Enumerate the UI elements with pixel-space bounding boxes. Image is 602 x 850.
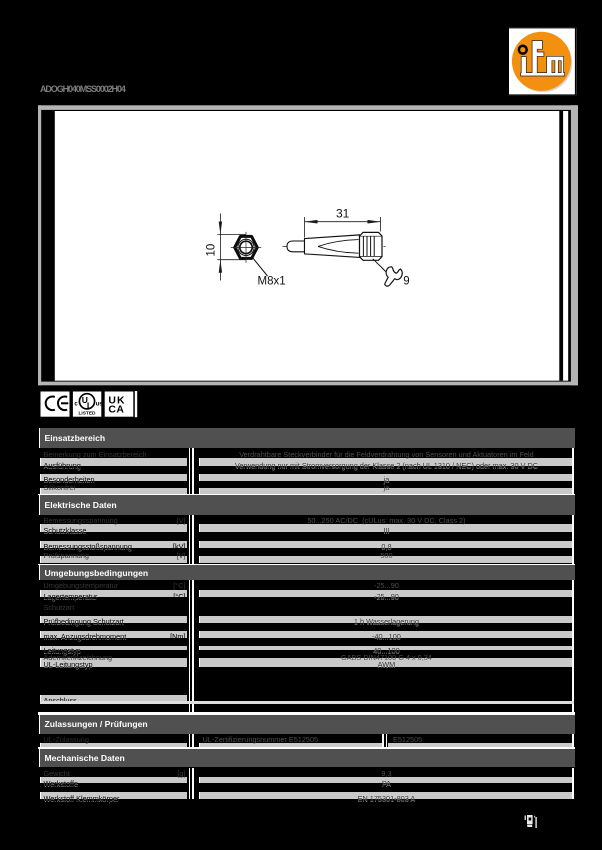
svg-text:M8x1: M8x1 bbox=[258, 276, 286, 288]
svg-text:31: 31 bbox=[336, 207, 350, 221]
svg-text:CA: CA bbox=[108, 405, 124, 416]
svg-text:10: 10 bbox=[206, 244, 218, 257]
svg-text:9: 9 bbox=[403, 275, 409, 287]
svg-text:LISTED: LISTED bbox=[78, 411, 96, 417]
svg-text:us: us bbox=[96, 401, 104, 407]
svg-text:L: L bbox=[87, 400, 92, 410]
